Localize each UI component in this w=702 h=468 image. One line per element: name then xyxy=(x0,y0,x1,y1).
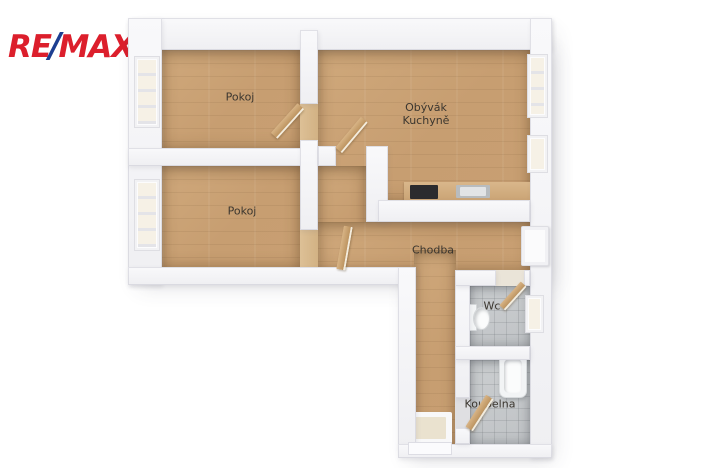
doormat-inner xyxy=(414,417,446,439)
window-pane xyxy=(531,139,544,169)
window-pokoj-1 xyxy=(134,56,160,128)
room-label-obyvak-kuchyne: Obývák Kuchyně xyxy=(403,101,450,127)
wall-center-middle xyxy=(300,140,318,230)
window-obyvak-large xyxy=(527,54,548,118)
wall-kitchen-front xyxy=(378,200,530,222)
entrance-door xyxy=(408,442,452,455)
window-wc xyxy=(525,295,544,333)
door-chodba-right xyxy=(521,226,549,266)
wall-outer-top xyxy=(128,18,552,50)
wall-chodba-obyvak xyxy=(318,146,336,166)
room-label-pokoj-2: Pokoj xyxy=(228,205,257,218)
bathtub-basin xyxy=(504,359,522,393)
floorplan: Pokoj Obývák Kuchyně Pokoj Chodba Wc Kou… xyxy=(0,0,702,468)
room-label-chodba: Chodba xyxy=(412,244,454,257)
room-label-obyvak-line2: Kuchyně xyxy=(403,114,450,127)
wall-outer-bottom-left xyxy=(128,267,416,285)
kitchen-sink-basin xyxy=(460,187,486,196)
wall-between-pokoj-rooms xyxy=(128,148,318,166)
wall-wc-left-lower xyxy=(455,428,470,444)
wall-wc-left-upper xyxy=(455,270,470,398)
room-label-obyvak-line1: Obývák xyxy=(403,101,450,114)
window-pokoj-2 xyxy=(134,179,160,251)
cooktop xyxy=(410,185,438,199)
room-label-pokoj-1: Pokoj xyxy=(226,91,255,104)
door-opening-pokoj-2 xyxy=(300,230,318,267)
bathtub xyxy=(499,354,527,398)
window-panes xyxy=(138,183,156,247)
wall-wc-koupelna-divider xyxy=(455,346,530,360)
room-label-wc: Wc xyxy=(484,300,501,313)
window-pane xyxy=(529,299,540,329)
kitchen-sink xyxy=(456,185,490,198)
wall-corridor-left xyxy=(398,267,416,448)
wall-wc-top-stub xyxy=(524,270,530,286)
window-obyvak-small xyxy=(527,135,548,173)
window-panes xyxy=(531,58,544,114)
window-panes xyxy=(138,60,156,124)
wall-wc-top xyxy=(455,270,496,286)
wall-center-upper xyxy=(300,30,318,104)
